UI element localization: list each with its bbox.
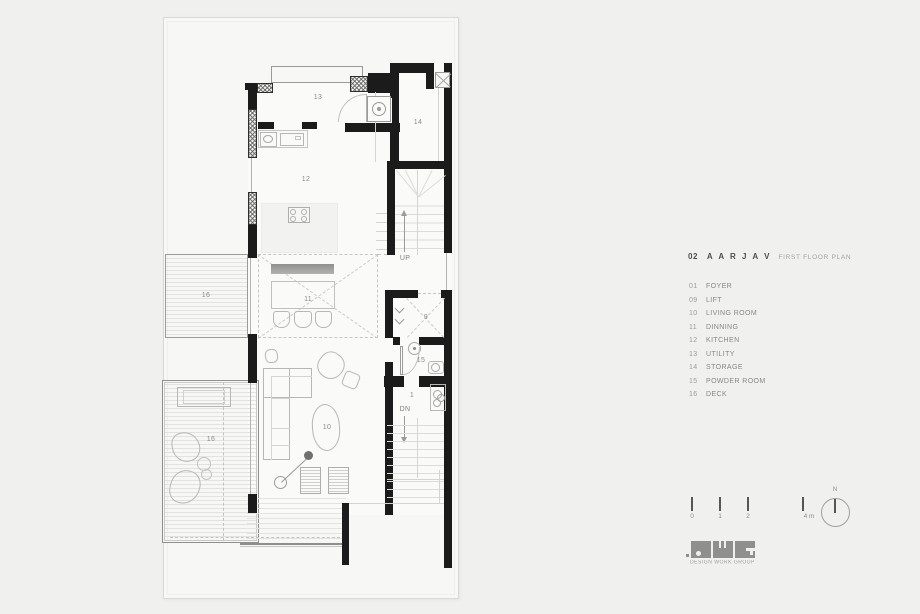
landing-line [439, 470, 440, 503]
legend-label: KITCHEN [706, 337, 740, 344]
scale-tick [719, 497, 721, 511]
legend-item: 10LIVING ROOM [689, 307, 766, 321]
window-line [446, 253, 447, 292]
wall-column-hatched [248, 192, 257, 225]
legend-item: 09LIFT [689, 294, 766, 308]
north-label: N [833, 487, 837, 493]
flight-line [376, 213, 387, 214]
legend-num: 10 [689, 310, 706, 317]
dining-chair [315, 311, 332, 328]
scale-tick [691, 497, 693, 511]
stair-center-line [417, 170, 418, 255]
scale-tick [747, 497, 749, 511]
sliding-door-line [250, 383, 251, 494]
sofa-back-line [271, 376, 272, 460]
room-label-dining: 11 [304, 296, 312, 303]
landing-line [349, 503, 444, 504]
room-label-kitchen: 12 [302, 176, 310, 183]
legend-label: DINNING [706, 324, 738, 331]
title-block: 02A A R J A VFIRST FLOOR PLAN [688, 246, 851, 264]
burner [301, 209, 307, 215]
window-line [251, 158, 252, 192]
legend-num: 09 [689, 297, 706, 304]
dining-chair [273, 311, 290, 328]
logo-cutout [696, 551, 701, 556]
wall-column-hatched [350, 76, 368, 92]
wall [444, 292, 452, 380]
scale-label: 0 [690, 513, 694, 520]
sofa-cushion-line [271, 428, 290, 429]
room-label-deck-upper: 16 [202, 292, 210, 299]
wall [384, 376, 404, 387]
logo-cutout [724, 541, 726, 548]
legend-num: 11 [689, 324, 706, 331]
legend-item: 15POWDER ROOM [689, 375, 766, 389]
logo-cutout [750, 551, 753, 555]
wall [390, 125, 399, 162]
legend-item: 13UTILITY [689, 348, 766, 362]
stair-treads-down [387, 418, 444, 505]
side-table [201, 469, 212, 480]
wall [444, 63, 452, 253]
legend-item: 12KITCHEN [689, 334, 766, 348]
scale-label: 1 [718, 513, 722, 520]
flight-line [376, 240, 387, 241]
burner [290, 209, 296, 215]
wall [393, 337, 400, 345]
flight-line [376, 249, 387, 250]
page: 13 14 12 16 11 9 15 1 10 16 UP DN 02A A … [0, 0, 920, 614]
wall [302, 122, 317, 129]
landing-line [387, 479, 444, 480]
sliding-door-line [250, 258, 251, 337]
burner [301, 216, 307, 222]
legend-label: LIVING ROOM [706, 310, 757, 317]
north-needle [834, 499, 836, 513]
floor-lamp-head [304, 451, 313, 460]
wall [248, 225, 257, 258]
legend-item: 16DECK [689, 388, 766, 402]
south-deck-strip [247, 494, 346, 543]
legend-label: STORAGE [706, 364, 743, 371]
scale-tick [802, 497, 804, 511]
legend-label: UTILITY [706, 351, 735, 358]
legend-num: 15 [689, 378, 706, 385]
legend-item: 11DINNING [689, 321, 766, 335]
legend-label: LIFT [706, 297, 722, 304]
legend-num: 14 [689, 364, 706, 371]
room-label-deck-lower: 16 [207, 436, 215, 443]
legend-num: 12 [689, 337, 706, 344]
legend-num: 13 [689, 351, 706, 358]
dashed-boundary [170, 537, 345, 538]
dn-label: DN [400, 406, 411, 413]
flight-line [376, 231, 387, 232]
logo-caption: DESIGN WORK GROUP [690, 560, 755, 565]
sofa-back-line [271, 376, 312, 377]
stair-treads-up [395, 198, 444, 255]
sheet-subtitle: FIRST FLOOR PLAN [778, 254, 851, 261]
wall [248, 494, 257, 513]
logo-block-w [713, 541, 733, 558]
wall [248, 334, 257, 383]
deck-edge-line [240, 543, 347, 547]
lift-door-dashes [418, 293, 441, 294]
project-name: A A R J A V [707, 252, 772, 261]
sofa-body [263, 368, 290, 460]
sofa-cushion-line [271, 398, 290, 399]
up-arrow-head [401, 210, 407, 216]
accent-chair [300, 467, 321, 494]
wall [387, 161, 395, 255]
wall [385, 290, 393, 338]
room-label-utility: 13 [314, 94, 322, 101]
shaft-line [438, 88, 439, 161]
sink-bowl [263, 135, 273, 143]
legend-num: 16 [689, 391, 706, 398]
dashed-extension [378, 254, 387, 255]
wall [392, 98, 399, 125]
sofa-cushion-line [271, 445, 290, 446]
stair-center-line [417, 418, 418, 478]
wall [426, 63, 434, 89]
floor-lamp-base [274, 476, 287, 489]
wall [248, 83, 257, 109]
wall-column-hatched [257, 83, 273, 93]
up-arrow-shaft [404, 216, 405, 252]
dining-table [271, 281, 335, 309]
plant-icon [433, 399, 441, 407]
wall [441, 290, 452, 298]
logo-cutout [719, 541, 721, 548]
wall [258, 122, 274, 129]
legend-label: DECK [706, 391, 727, 398]
legend-label: POWDER ROOM [706, 378, 766, 385]
room-label-storage: 14 [414, 119, 422, 126]
logo-dot [686, 554, 689, 557]
accent-chair [328, 467, 349, 494]
dining-bench [271, 264, 334, 274]
burner [290, 216, 296, 222]
flight-line [376, 222, 387, 223]
legend-item: 01FOYER [689, 280, 766, 294]
wall-column-hatched [248, 109, 257, 158]
wall [419, 337, 450, 345]
room-label-foyer: 1 [410, 392, 414, 399]
room-label-powder: 15 [417, 357, 425, 364]
room-label-living: 10 [323, 424, 331, 431]
logo-block-d [691, 541, 711, 558]
legend-label: FOYER [706, 283, 732, 290]
scale-label: 2 [746, 513, 750, 520]
wall [342, 503, 349, 565]
sheet-number: 02 [688, 252, 698, 261]
dining-chair [294, 311, 312, 328]
appliance-detail [295, 136, 301, 140]
deck-bench-inner [183, 390, 225, 404]
wall [390, 161, 447, 169]
scale-label: 4 m [804, 513, 815, 520]
legend-item: 14STORAGE [689, 361, 766, 375]
room-legend: 01FOYER 09LIFT 10LIVING ROOM 11DINNING 1… [689, 280, 766, 402]
up-label: UP [400, 255, 410, 262]
toilet-bowl [431, 363, 440, 372]
room-label-lift: 9 [424, 314, 428, 321]
legend-num: 01 [689, 283, 706, 290]
washer-dot [377, 107, 381, 111]
